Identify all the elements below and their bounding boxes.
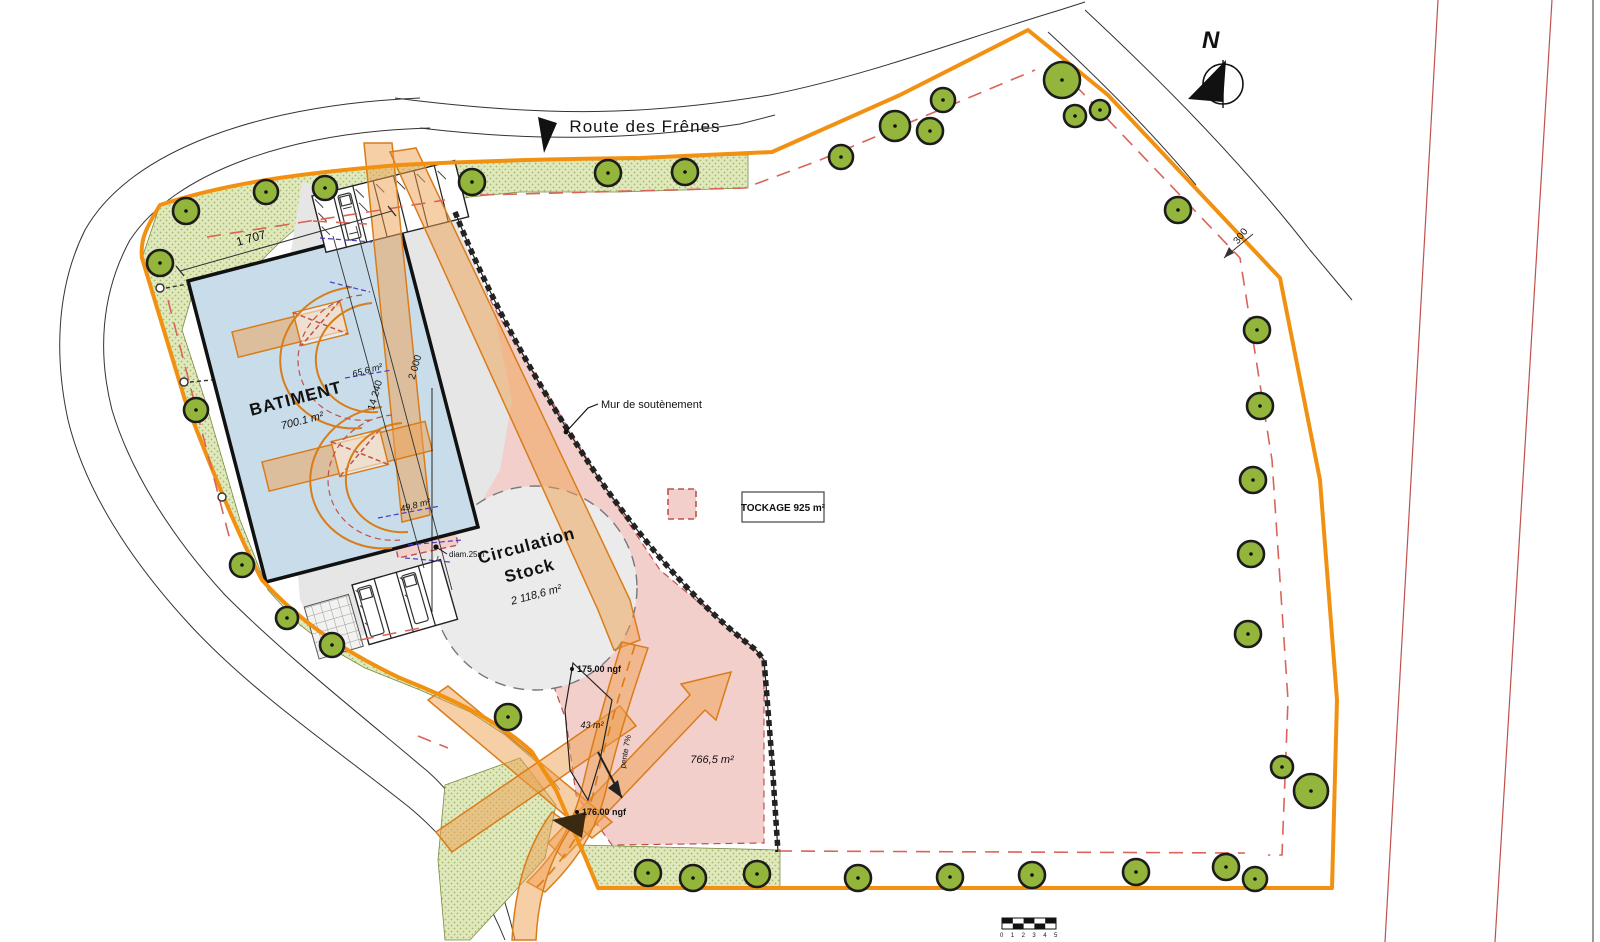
tree-center-dot	[856, 876, 860, 880]
tree-center-dot	[1060, 78, 1064, 82]
site-plan-drawing: 1 707 14 240 2 000 300 Route des Frênes …	[0, 0, 1600, 942]
tree-center-dot	[1309, 789, 1313, 793]
tree-center-dot	[1253, 877, 1257, 881]
tree-center-dot	[1134, 870, 1138, 874]
tree-center-dot	[470, 180, 474, 184]
tree-center-dot	[646, 871, 650, 875]
tree-center-dot	[948, 875, 952, 879]
road-name: Route des Frênes	[569, 117, 720, 136]
tree-center-dot	[506, 715, 510, 719]
tree-center-dot	[323, 186, 327, 190]
area-766: 766,5 m²	[690, 754, 734, 766]
legend-stockage-swatch	[668, 489, 696, 519]
legend: TOCKAGE 925 m²	[668, 489, 826, 522]
tree-center-dot	[1073, 114, 1077, 118]
tree-center-dot	[1176, 208, 1180, 212]
scale-tick-label: 2	[1022, 933, 1026, 939]
legend-stockage-label: TOCKAGE 925 m²	[741, 503, 826, 514]
scale-tick-label: 5	[1054, 933, 1058, 939]
wall-callout: Mur de soutènement	[564, 399, 702, 434]
tree-center-dot	[1258, 404, 1262, 408]
tree-center-dot	[1246, 632, 1250, 636]
level-upper-label: 175.00 ngf	[577, 664, 622, 674]
road-direction-arrow	[538, 117, 557, 153]
scale-tick-labels: 012345	[1000, 933, 1058, 939]
tree-center-dot	[330, 643, 334, 647]
scale-tick-label: 0	[1000, 933, 1004, 939]
tree-center-dot	[1249, 552, 1253, 556]
tree-center-dot	[1280, 765, 1284, 769]
scale-tick-label: 4	[1043, 933, 1047, 939]
tree-center-dot	[893, 124, 897, 128]
tree-center-dot	[606, 171, 610, 175]
tree-center-dot	[240, 563, 244, 567]
tree-center-dot	[839, 155, 843, 159]
tree-center-dot	[264, 190, 268, 194]
road-edge-top-upper	[395, 2, 1085, 112]
north-arrow: N	[1188, 27, 1243, 108]
tree-center-dot	[1255, 328, 1259, 332]
tree-center-dot	[941, 98, 945, 102]
adjacent-road-lines	[1385, 0, 1593, 942]
diameter-label: diam.25m	[449, 550, 484, 559]
north-label: N	[1202, 27, 1220, 54]
level-lower-label: 176.00 ngf	[582, 807, 627, 817]
site-plan: 1 707 14 240 2 000 300 Route des Frênes …	[0, 0, 1600, 942]
scale-tick-label: 3	[1032, 933, 1036, 939]
tree-center-dot	[1030, 873, 1034, 877]
tree-center-dot	[184, 209, 188, 213]
tree-center-dot	[194, 408, 198, 412]
tree-center-dot	[683, 170, 687, 174]
scale-bar: 012345	[1000, 918, 1058, 939]
tree-center-dot	[285, 616, 289, 620]
north-needle	[1188, 60, 1226, 102]
wall-label: Mur de soutènement	[601, 399, 702, 411]
tree-center-dot	[755, 872, 759, 876]
tree-center-dot	[1098, 108, 1102, 112]
tree-center-dot	[1251, 478, 1255, 482]
tree-center-dot	[691, 876, 695, 880]
tree-center-dot	[158, 261, 162, 265]
tree-center-dot	[928, 129, 932, 133]
area-43: 43 m²	[580, 720, 604, 730]
scale-tick-label: 1	[1011, 933, 1015, 939]
tree-center-dot	[1224, 865, 1228, 869]
